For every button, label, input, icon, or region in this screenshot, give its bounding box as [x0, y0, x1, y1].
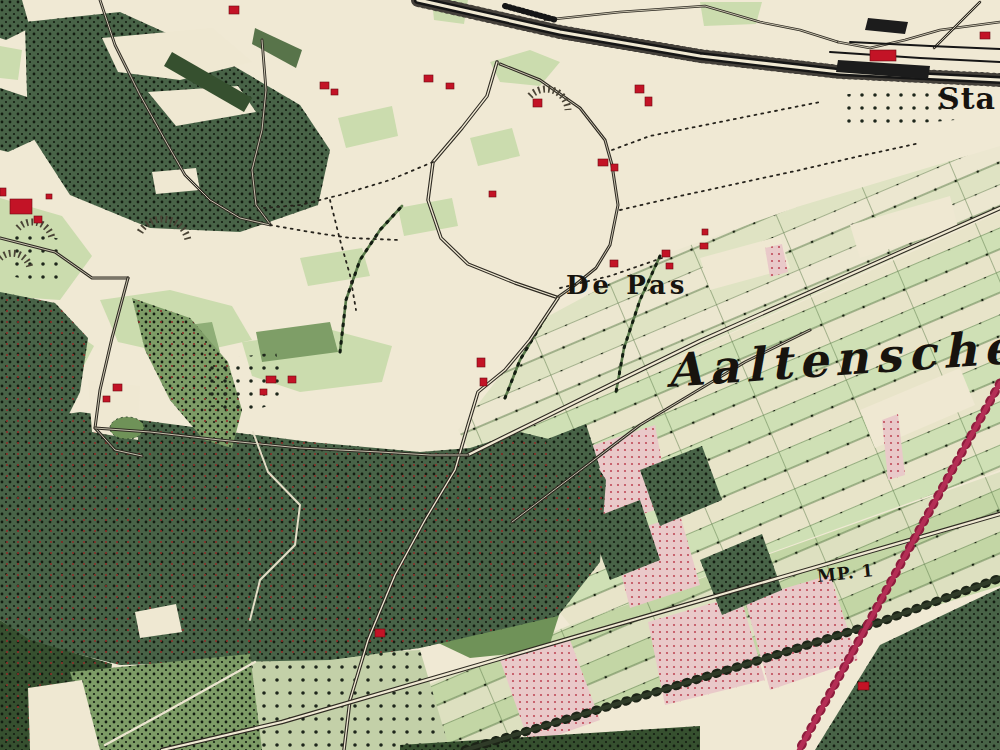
map-label-de-pas: De Pas: [566, 272, 688, 298]
building: [10, 199, 32, 214]
building: [635, 85, 644, 93]
building: [598, 159, 608, 166]
building: [320, 82, 329, 89]
building: [266, 376, 276, 383]
building: [424, 75, 433, 82]
building: [480, 378, 487, 386]
building: [610, 260, 618, 267]
building: [375, 629, 385, 637]
building: [260, 389, 267, 395]
map-label-station: Sta: [938, 84, 996, 114]
building: [611, 164, 618, 171]
building: [288, 376, 296, 383]
building: [477, 358, 485, 367]
building: [331, 89, 338, 95]
building: [702, 229, 708, 235]
building: [858, 682, 869, 690]
pond: [110, 417, 144, 439]
building: [103, 396, 110, 402]
building: [229, 6, 239, 14]
building: [700, 243, 708, 249]
building: [980, 32, 990, 39]
building: [645, 97, 652, 106]
map-canvas: De Pas Aaltensche Sta MP. 1: [0, 0, 1000, 750]
building: [446, 83, 454, 89]
plantation-trees: [230, 650, 450, 750]
building: [34, 216, 42, 223]
building: [113, 384, 122, 391]
building: [666, 263, 673, 269]
building: [489, 191, 496, 197]
building: [0, 188, 6, 196]
building: [533, 99, 542, 107]
building: [46, 194, 52, 199]
building: [662, 250, 670, 257]
building: [870, 50, 896, 61]
